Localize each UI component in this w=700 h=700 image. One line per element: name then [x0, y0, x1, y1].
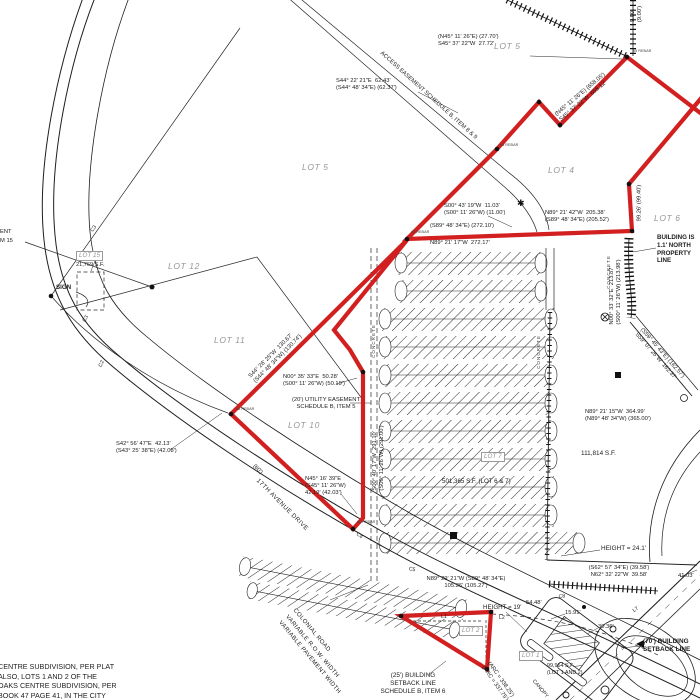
lot-label-4: LOT 4	[548, 165, 575, 176]
bearing-s00-43-19: S00° 43' 19"W 11.03' (S00° 11' 26"W) (11…	[444, 203, 505, 217]
rebar-tag-west-corner: #5 REBAR	[411, 230, 429, 235]
dim-30-36: 30.36'	[598, 624, 614, 631]
curve-tag-c5: C5	[408, 566, 416, 574]
lot-label-5-mid: LOT 5	[302, 162, 329, 173]
plat-linework: ✱	[0, 0, 700, 700]
lot-label-10: LOT 10	[288, 420, 320, 431]
line-tag-l2: L2	[499, 615, 505, 622]
height-19-label: HEIGHT = 19'	[483, 604, 521, 612]
dim-9-00: 9.00' (9.00')	[630, 6, 644, 22]
area-lot6: 111,814 S.F.	[581, 450, 616, 458]
bearing-apex: (N45° 11' 26"E) (27.70') S45° 37' 22"W 2…	[438, 34, 499, 48]
cut-item15-text: M 15	[0, 238, 13, 245]
bearing-n89-29-21: N89° 29' 21"W (S89° 48' 34"E) 105.26' (1…	[420, 576, 512, 590]
bearing-s42-56-47: S42° 56' 47"E 42.13' (S43° 25' 38"E) (42…	[116, 441, 177, 455]
concrete-label-mid: CONCRETE	[536, 335, 542, 369]
bearing-n89-21-17: N89° 21' 17"W 272.17'	[430, 240, 490, 247]
bearing-notch: S44° 22' 21"E 62.43' (S44° 48' 34"E) (62…	[336, 78, 397, 92]
dashed-lines	[77, 248, 660, 665]
bearing-s89-48-34: (S89° 48' 34"E) (272.10')	[430, 223, 494, 230]
dim-15-91: 15.91'	[565, 610, 581, 617]
dim-54-48: 54.48'	[526, 600, 542, 607]
building-north-note: BUILDING IS 1.1' NORTH PROPERTY LINE	[657, 234, 694, 265]
concrete-label-east: CONCRETE	[606, 255, 612, 289]
concrete-label-west: CONCRETE	[371, 324, 377, 358]
lot-label-12: LOT 12	[168, 261, 200, 272]
setback-70-note: (70') BUILDING SETBACK LINE	[643, 638, 690, 654]
rebar-tag-south-corner: #5 REBAR	[357, 520, 375, 525]
height-24-label: HEIGHT = 24.1'	[601, 545, 646, 553]
sign-label: SIGN	[56, 284, 71, 292]
rebar-tag-road-corner: #5 REBAR	[236, 407, 254, 412]
dim-99-26: 99.26' (99.40')	[636, 185, 643, 222]
area-lot15: 21,769 S.F.	[76, 262, 104, 269]
utility-easement-mid: (20') UTILITY EASEMENT SCHEDULE B, ITEM …	[282, 397, 370, 411]
bearing-n62-32-22: (S62° 57' 34"E) (39.58') N62° 32' 22"W 3…	[586, 565, 652, 579]
lot-label-7-boxed: LOT 7	[481, 452, 505, 462]
bearing-n89-21-15: N89° 21' 15"W 364.99' (N89° 48' 34"W) (3…	[585, 409, 651, 423]
lot-label-15-boxed: LOT 15	[76, 251, 103, 261]
area-lot1-2: 99,964 S.F. (LOT 1 AND 2)	[547, 663, 583, 677]
lot-label-6: LOT 6	[654, 213, 681, 224]
parking-rows	[238, 252, 585, 640]
lot-label-1-boxed: LOT 1	[519, 651, 543, 661]
lot-label-11: LOT 11	[214, 335, 245, 346]
bearing-n00-35-33: N00° 35' 33"E 50.28' (S00° 11' 26"W) (50…	[283, 374, 345, 388]
rebar-tag-apex: #5 REBAR	[633, 49, 651, 54]
bearing-n45-16-39: N45° 16' 39"E (S45° 11' 26"W) 42.19' (42…	[305, 476, 346, 498]
rebar-tag-notch: #5 REBAR	[500, 143, 518, 148]
curve-tag-c8: C8	[558, 593, 565, 600]
svg-text:✱: ✱	[517, 198, 525, 208]
bearing-s00-40-17: S00° 40' 17"W 291.10' (S00° 11' 26"W) (2…	[372, 425, 386, 490]
lot-label-2-boxed: LOT 2	[459, 626, 483, 636]
line-tag-l1: L1	[441, 614, 447, 621]
dim-41-03: 41.03'	[678, 573, 694, 580]
setback-25-note: (25') BUILDING SETBACK LINE SCHEDULE B, …	[368, 672, 458, 696]
bearing-n89-21-42: N89° 21' 42"W 205.38' (S89° 48' 34"E) (2…	[545, 210, 609, 224]
survey-plat-drawing: ✱ LOT 5 LOT 5 LOT 4 LOT 6 LOT 12 LOT 11 …	[0, 0, 700, 700]
area-lot6-7: 501,365 S.F. (LOT 6 & 7)	[442, 478, 511, 486]
subdivision-note: CENTRE SUBDIVISION, PER PLAT ALSO, LOTS …	[0, 662, 117, 700]
cut-easement-text: ENT	[0, 229, 12, 236]
